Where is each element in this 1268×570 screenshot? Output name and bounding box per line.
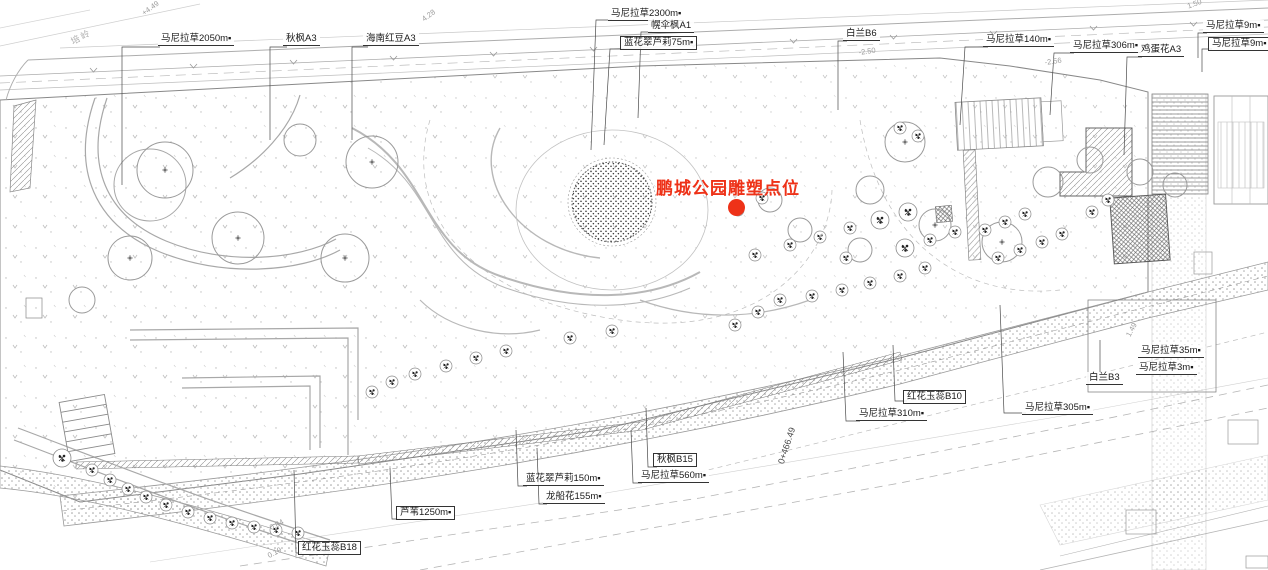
elevation-mark: 0.84 bbox=[268, 517, 285, 532]
area-name-label: 培岭 bbox=[68, 26, 94, 48]
elevation-mark: 1.49 bbox=[1124, 321, 1139, 338]
plant-label: 马尼拉草560m▪ bbox=[638, 470, 709, 483]
plant-label: 马尼拉草9m▪ bbox=[1203, 20, 1264, 33]
plant-label: 龙船花155m▪ bbox=[543, 491, 605, 504]
plant-label: 幌伞枫A1 bbox=[648, 20, 694, 33]
plant-label: 马尼拉草2050m▪ bbox=[158, 33, 234, 46]
plant-label: 马尼拉草140m▪ bbox=[983, 34, 1054, 47]
plant-label: 马尼拉草306m▪ bbox=[1070, 40, 1141, 53]
elevation-mark: +4.49 bbox=[140, 0, 161, 17]
station-label: 0+466.49 bbox=[776, 426, 797, 465]
plant-label: 白兰B3 bbox=[1086, 372, 1123, 385]
labels-layer: 马尼拉草2050m▪ 秋枫A3 海南红豆A3 马尼拉草2300m▪ 幌伞枫A1 … bbox=[0, 0, 1268, 570]
sculpture-point-marker[interactable] bbox=[728, 199, 745, 216]
plant-label: 蓝花翠芦莉75m▪ bbox=[620, 36, 697, 50]
plant-label: 马尼拉草3m▪ bbox=[1136, 362, 1197, 375]
plant-label: 秋枫A3 bbox=[283, 33, 320, 46]
plant-label: 秋枫B15 bbox=[653, 453, 697, 467]
plant-label: 马尼拉草9m▪ bbox=[1208, 37, 1268, 51]
plant-label: 芦苇1250m▪ bbox=[396, 506, 455, 520]
plant-label: 红花玉蕊B18 bbox=[298, 541, 361, 555]
plant-label: 鸡蛋花A3 bbox=[1138, 44, 1184, 57]
elevation-mark: -2.50 bbox=[858, 46, 876, 57]
plant-label: 马尼拉草305m▪ bbox=[1022, 402, 1093, 415]
elevation-mark: 1.50 bbox=[1186, 0, 1203, 10]
elevation-mark: 4.28 bbox=[420, 7, 437, 23]
plant-label: 红花玉蕊B10 bbox=[903, 390, 966, 404]
plant-label: 白兰B6 bbox=[843, 28, 880, 41]
plant-label: 马尼拉草35m▪ bbox=[1138, 345, 1204, 358]
plan-canvas: 马尼拉草2050m▪ 秋枫A3 海南红豆A3 马尼拉草2300m▪ 幌伞枫A1 … bbox=[0, 0, 1268, 570]
elevation-mark: 0.19 bbox=[266, 545, 283, 560]
plant-label: 蓝花翠芦莉150m▪ bbox=[523, 473, 604, 486]
sculpture-annotation-title: 鹏城公园雕塑点位 bbox=[656, 174, 800, 199]
plant-label: 海南红豆A3 bbox=[363, 33, 419, 46]
elevation-mark: -2.56 bbox=[1044, 56, 1062, 67]
plant-label: 马尼拉草310m▪ bbox=[856, 408, 927, 421]
